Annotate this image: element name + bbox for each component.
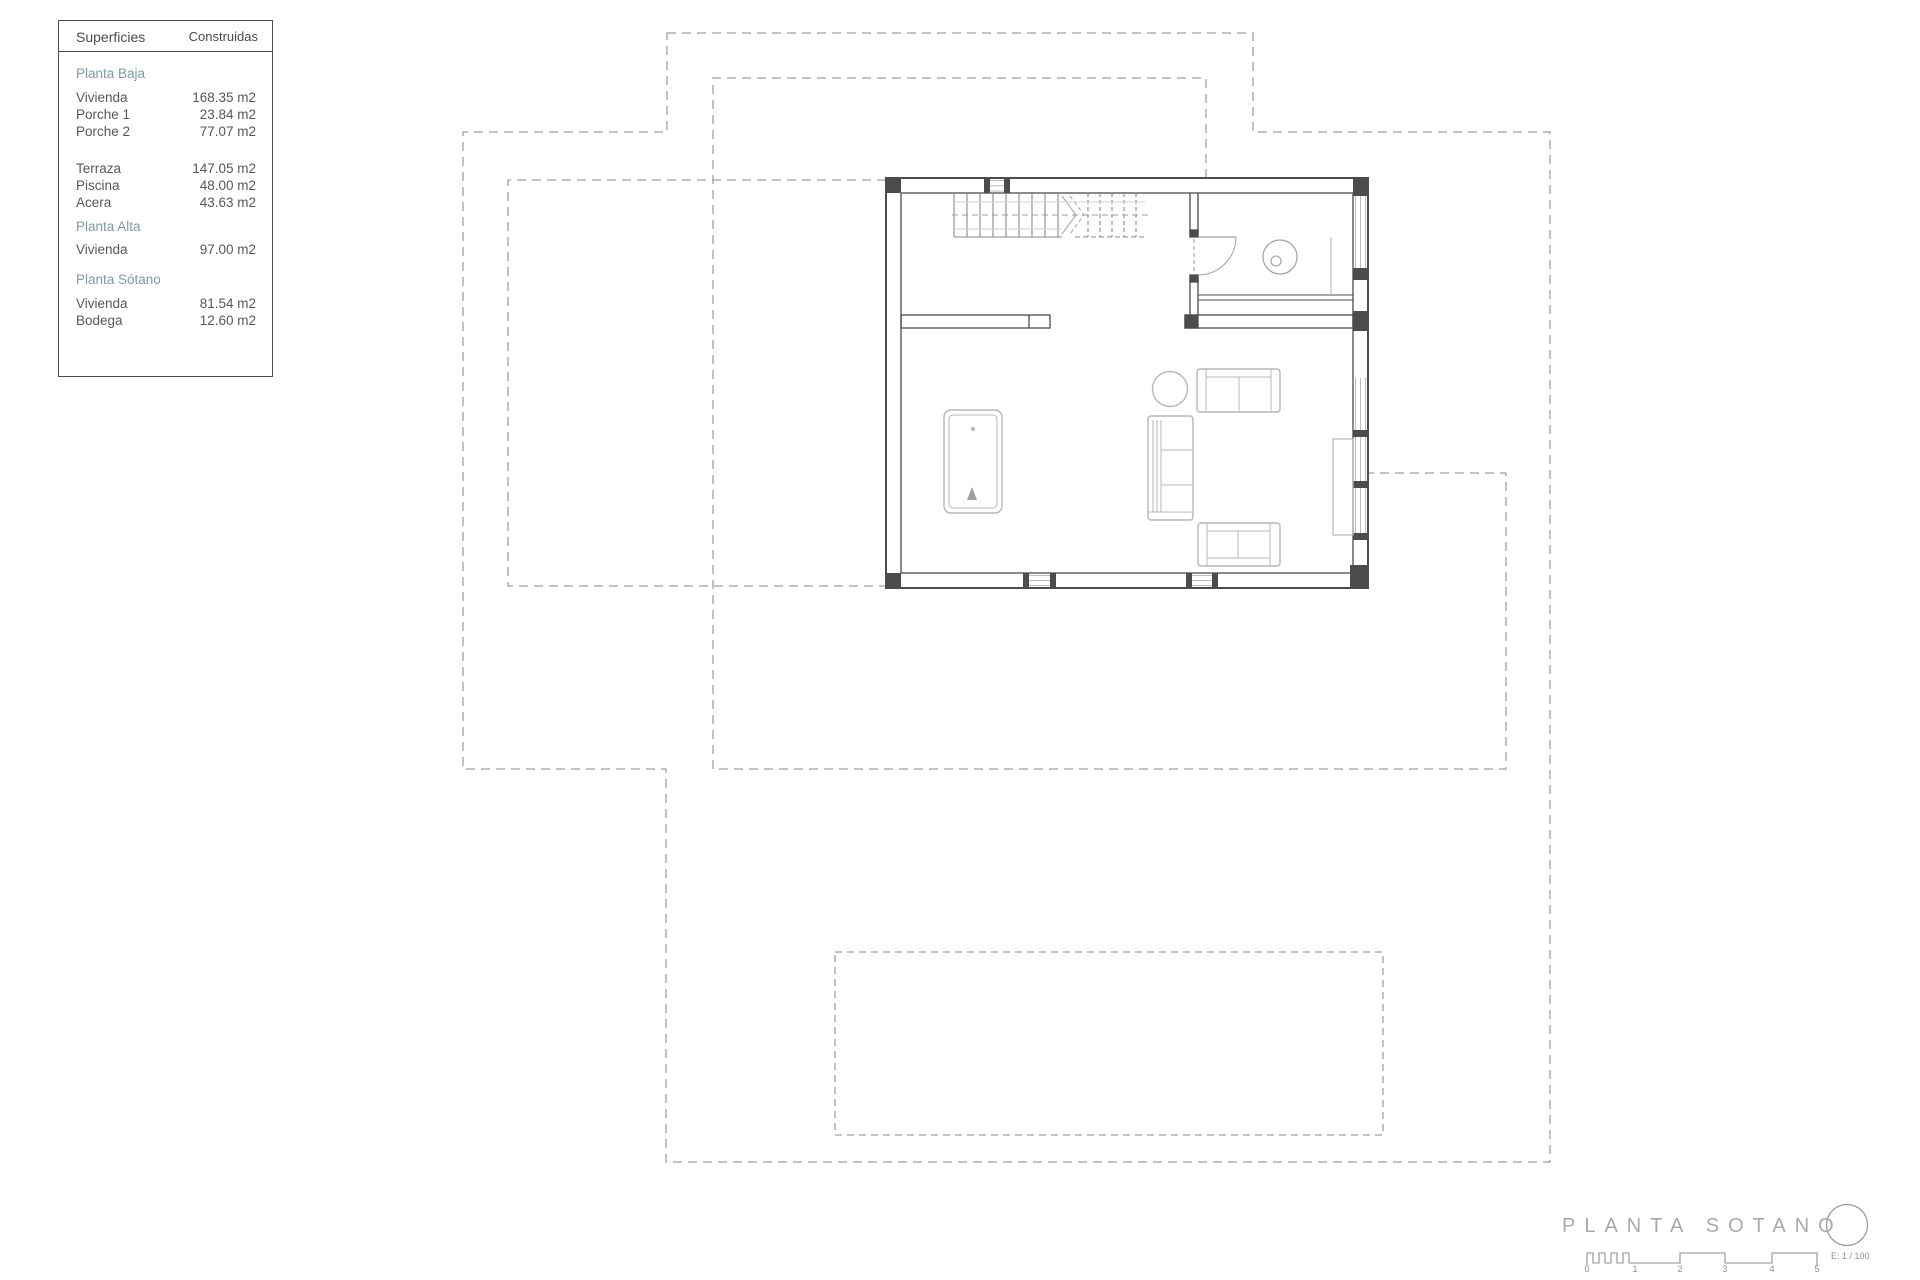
floor-plan-svg: [0, 0, 1920, 1280]
scale-tick-4: 4: [1767, 1264, 1777, 1274]
scale-tick-1: 1: [1630, 1264, 1640, 1274]
legend-gap: [76, 140, 256, 160]
legend-section-planta-alta: Planta Alta: [76, 218, 256, 235]
legend-row-piscina: Piscina 48.00 m2: [76, 177, 256, 194]
interior-walls: [901, 193, 1353, 328]
legend-row-terraza: Terraza 147.05 m2: [76, 160, 256, 177]
legend-section-planta-sotano: Planta Sótano: [76, 271, 256, 288]
billiard-table: [944, 410, 1002, 513]
legend-header: Superficies Construidas: [59, 21, 272, 52]
scale-tick-0: 0: [1582, 1264, 1592, 1274]
drawing-sheet: Superficies Construidas Planta Baja Vivi…: [0, 0, 1920, 1280]
scale-tick-2: 2: [1675, 1264, 1685, 1274]
scale-tick-5: 5: [1812, 1264, 1822, 1274]
sideboard: [1333, 439, 1353, 535]
outer-wall: [886, 178, 1368, 588]
sofa-bottom: [1198, 523, 1280, 566]
pool-outline: [835, 952, 1383, 1135]
legend-col-construidas: Construidas: [189, 29, 258, 45]
scale-bar: [1587, 1253, 1817, 1266]
door-swing-arc: [1198, 237, 1236, 275]
building-walls: [886, 178, 1368, 588]
plan-title: PLANTA SOTANO: [1562, 1215, 1843, 1238]
furniture: [944, 369, 1353, 566]
bathroom: [1194, 237, 1331, 295]
bathroom-bottom-wall: [1198, 295, 1353, 300]
sink-drain-icon: [1271, 256, 1281, 266]
sofa-top: [1197, 369, 1280, 412]
legend-row-vivienda-sotano: Vivienda 81.54 m2: [76, 295, 256, 312]
legend-row-porche-2: Porche 2 77.07 m2: [76, 123, 256, 140]
side-table: [1153, 372, 1188, 407]
sink-basin-icon: [1263, 240, 1297, 274]
staircase: [952, 193, 1148, 237]
billiard-rack-triangle: [967, 487, 977, 500]
legend-row-vivienda-baja: Vivienda 168.35 m2: [76, 89, 256, 106]
legend-section-planta-baja: Planta Baja: [76, 65, 256, 82]
legend-row-vivienda-alta: Vivienda 97.00 m2: [76, 241, 256, 258]
wall-caps: [886, 178, 1368, 588]
scale-tick-3: 3: [1720, 1264, 1730, 1274]
bottom-wall-windows: [1029, 574, 1212, 587]
scale-ratio-label: E: 1 / 100: [1831, 1251, 1870, 1261]
windows: [989, 179, 1367, 587]
legend-body: Planta Baja Vivienda 168.35 m2 Porche 1 …: [59, 65, 272, 329]
legend-row-porche-1: Porche 1 23.84 m2: [76, 106, 256, 123]
terrace-outline: [508, 180, 886, 586]
top-wall-window: [989, 179, 1005, 192]
legend-row-bodega: Bodega 12.60 m2: [76, 312, 256, 329]
legend-row-acera: Acera 43.63 m2: [76, 194, 256, 211]
legend-col-superficies: Superficies: [76, 29, 145, 45]
partition-right: [1185, 315, 1353, 328]
partition-left: [901, 315, 1050, 328]
inner-wall: [901, 193, 1353, 573]
ground-floor-outline: [713, 78, 1506, 769]
areas-legend-table: Superficies Construidas Planta Baja Vivi…: [58, 20, 273, 377]
sofa-left: [1148, 416, 1193, 520]
